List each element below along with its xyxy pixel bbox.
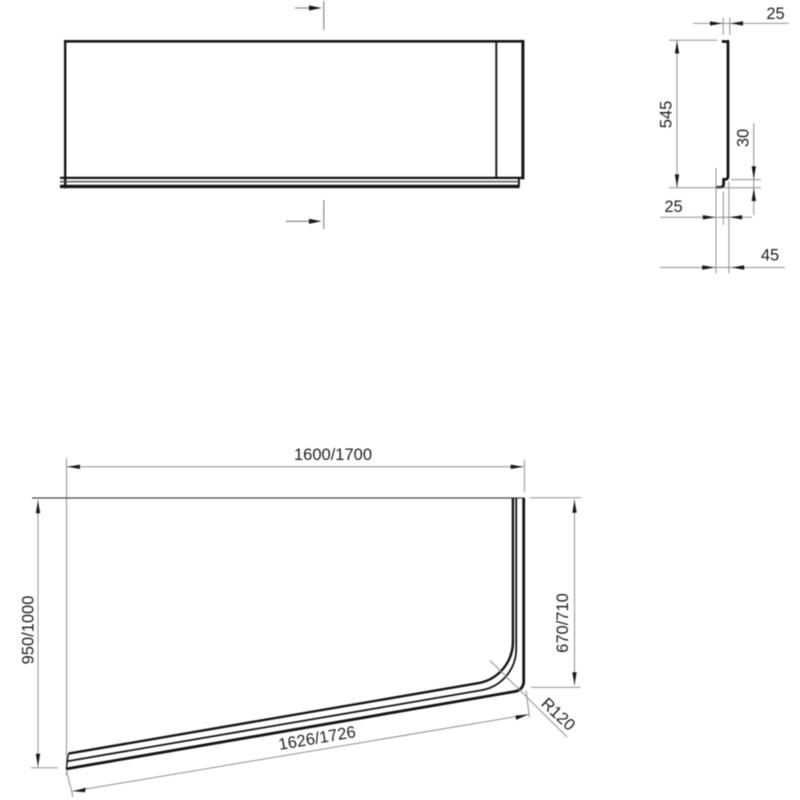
svg-text:45: 45 (761, 247, 779, 265)
svg-text:30: 30 (735, 129, 753, 147)
svg-text:25: 25 (766, 5, 784, 23)
svg-text:950/1000: 950/1000 (20, 596, 38, 665)
svg-text:545: 545 (658, 101, 676, 129)
svg-text:25: 25 (664, 198, 682, 216)
svg-text:670/710: 670/710 (554, 593, 572, 653)
svg-text:1600/1700: 1600/1700 (294, 446, 372, 464)
